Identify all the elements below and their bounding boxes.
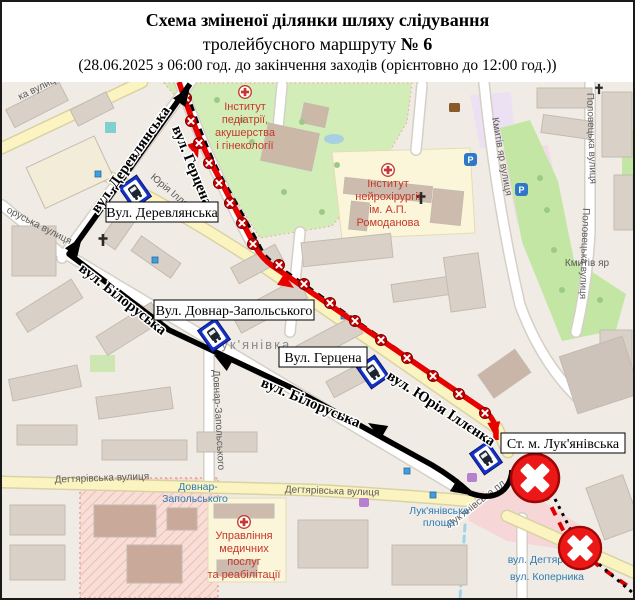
closure-x-icon <box>480 408 491 419</box>
closure-x-icon <box>225 198 236 209</box>
poi-line: та реабілітації <box>208 569 281 581</box>
scheme-title: Схема зміненої ділянки шляху слідування … <box>2 2 633 82</box>
road-closed-x-marker <box>511 454 559 502</box>
route-number: № 6 <box>401 34 433 54</box>
shop-icon <box>467 473 477 482</box>
closure-x-icon <box>237 218 248 229</box>
closure-x-icon <box>428 371 439 382</box>
title-route-prefix: тролейбусного маршруту <box>203 34 401 54</box>
library-icon <box>449 103 460 112</box>
parking-letter: P <box>518 185 524 195</box>
parking-icon: P <box>464 153 477 166</box>
stop-label-dovnar-zapolskoho: Вул. Довнар-Запольського <box>154 300 314 320</box>
closure-x-icon <box>454 389 465 400</box>
closure-x-icon <box>194 138 205 149</box>
stop-name: Вул. Деревлянська <box>106 206 218 221</box>
transit-label: площа <box>423 517 455 529</box>
closure-x-icon <box>325 298 336 309</box>
stop-label-derevlianska: Вул. Деревлянська <box>106 202 218 222</box>
parking-icon: P <box>515 183 528 196</box>
poi-line: педіатрії, <box>222 114 268 126</box>
road-closed-x-marker <box>559 527 601 569</box>
closure-x-icon <box>350 316 361 327</box>
parking-letter: P <box>467 155 473 165</box>
closure-x-icon <box>248 239 259 250</box>
city-map: P P Дегтярівська вулиця Дегтярівська вул… <box>2 82 633 598</box>
poi-line: і гінекології <box>216 140 273 152</box>
transit-label: Лук'янівська <box>409 505 469 517</box>
poi-line: Управління <box>215 530 272 542</box>
closure-x-icon <box>186 116 197 127</box>
title-line-2: тролейбусного маршруту № 6 <box>2 34 633 55</box>
transit-label: вул. Коперника <box>510 571 584 583</box>
poi-line: послуг <box>227 556 261 568</box>
park-label: Кмитів яр <box>565 258 610 269</box>
poi-line: Ромоданова <box>357 217 421 229</box>
closure-x-icon <box>214 178 225 189</box>
shop-icon <box>359 498 369 507</box>
poi-line: Інститут <box>224 101 266 113</box>
closure-x-icon <box>274 260 285 271</box>
stop-label-hertsena: Вул. Герцена <box>279 347 367 367</box>
hospital-icon <box>382 164 395 177</box>
closure-x-icon <box>204 158 215 169</box>
closure-x-icon <box>376 335 387 346</box>
stop-label-lukianivska: Ст. м. Лук'янівська <box>501 433 625 453</box>
poi-line: нейрохірургії <box>355 191 420 203</box>
stop-name: Вул. Довнар-Запольського <box>156 304 313 319</box>
transit-label: Довнар- <box>178 481 218 493</box>
poi-line: медичних <box>219 543 269 555</box>
title-line-3: (28.06.2025 з 06:00 год. до закінчення з… <box>2 57 633 75</box>
closure-x-icon <box>402 353 413 364</box>
transit-label: Запольського <box>162 493 228 505</box>
closure-x-icon <box>299 279 310 290</box>
hospital-icon <box>239 86 252 99</box>
stop-name: Ст. м. Лук'янівська <box>507 437 620 452</box>
route-change-scheme: Схема зміненої ділянки шляху слідування … <box>0 0 635 600</box>
stop-name: Вул. Герцена <box>284 351 362 366</box>
poi-line: акушерства <box>215 127 276 139</box>
title-line-1: Схема зміненої ділянки шляху слідування <box>2 10 633 31</box>
poi-line: Інститут <box>367 178 409 190</box>
hospital-icon <box>238 516 251 529</box>
poi-line: ім. А.П. <box>369 204 406 216</box>
